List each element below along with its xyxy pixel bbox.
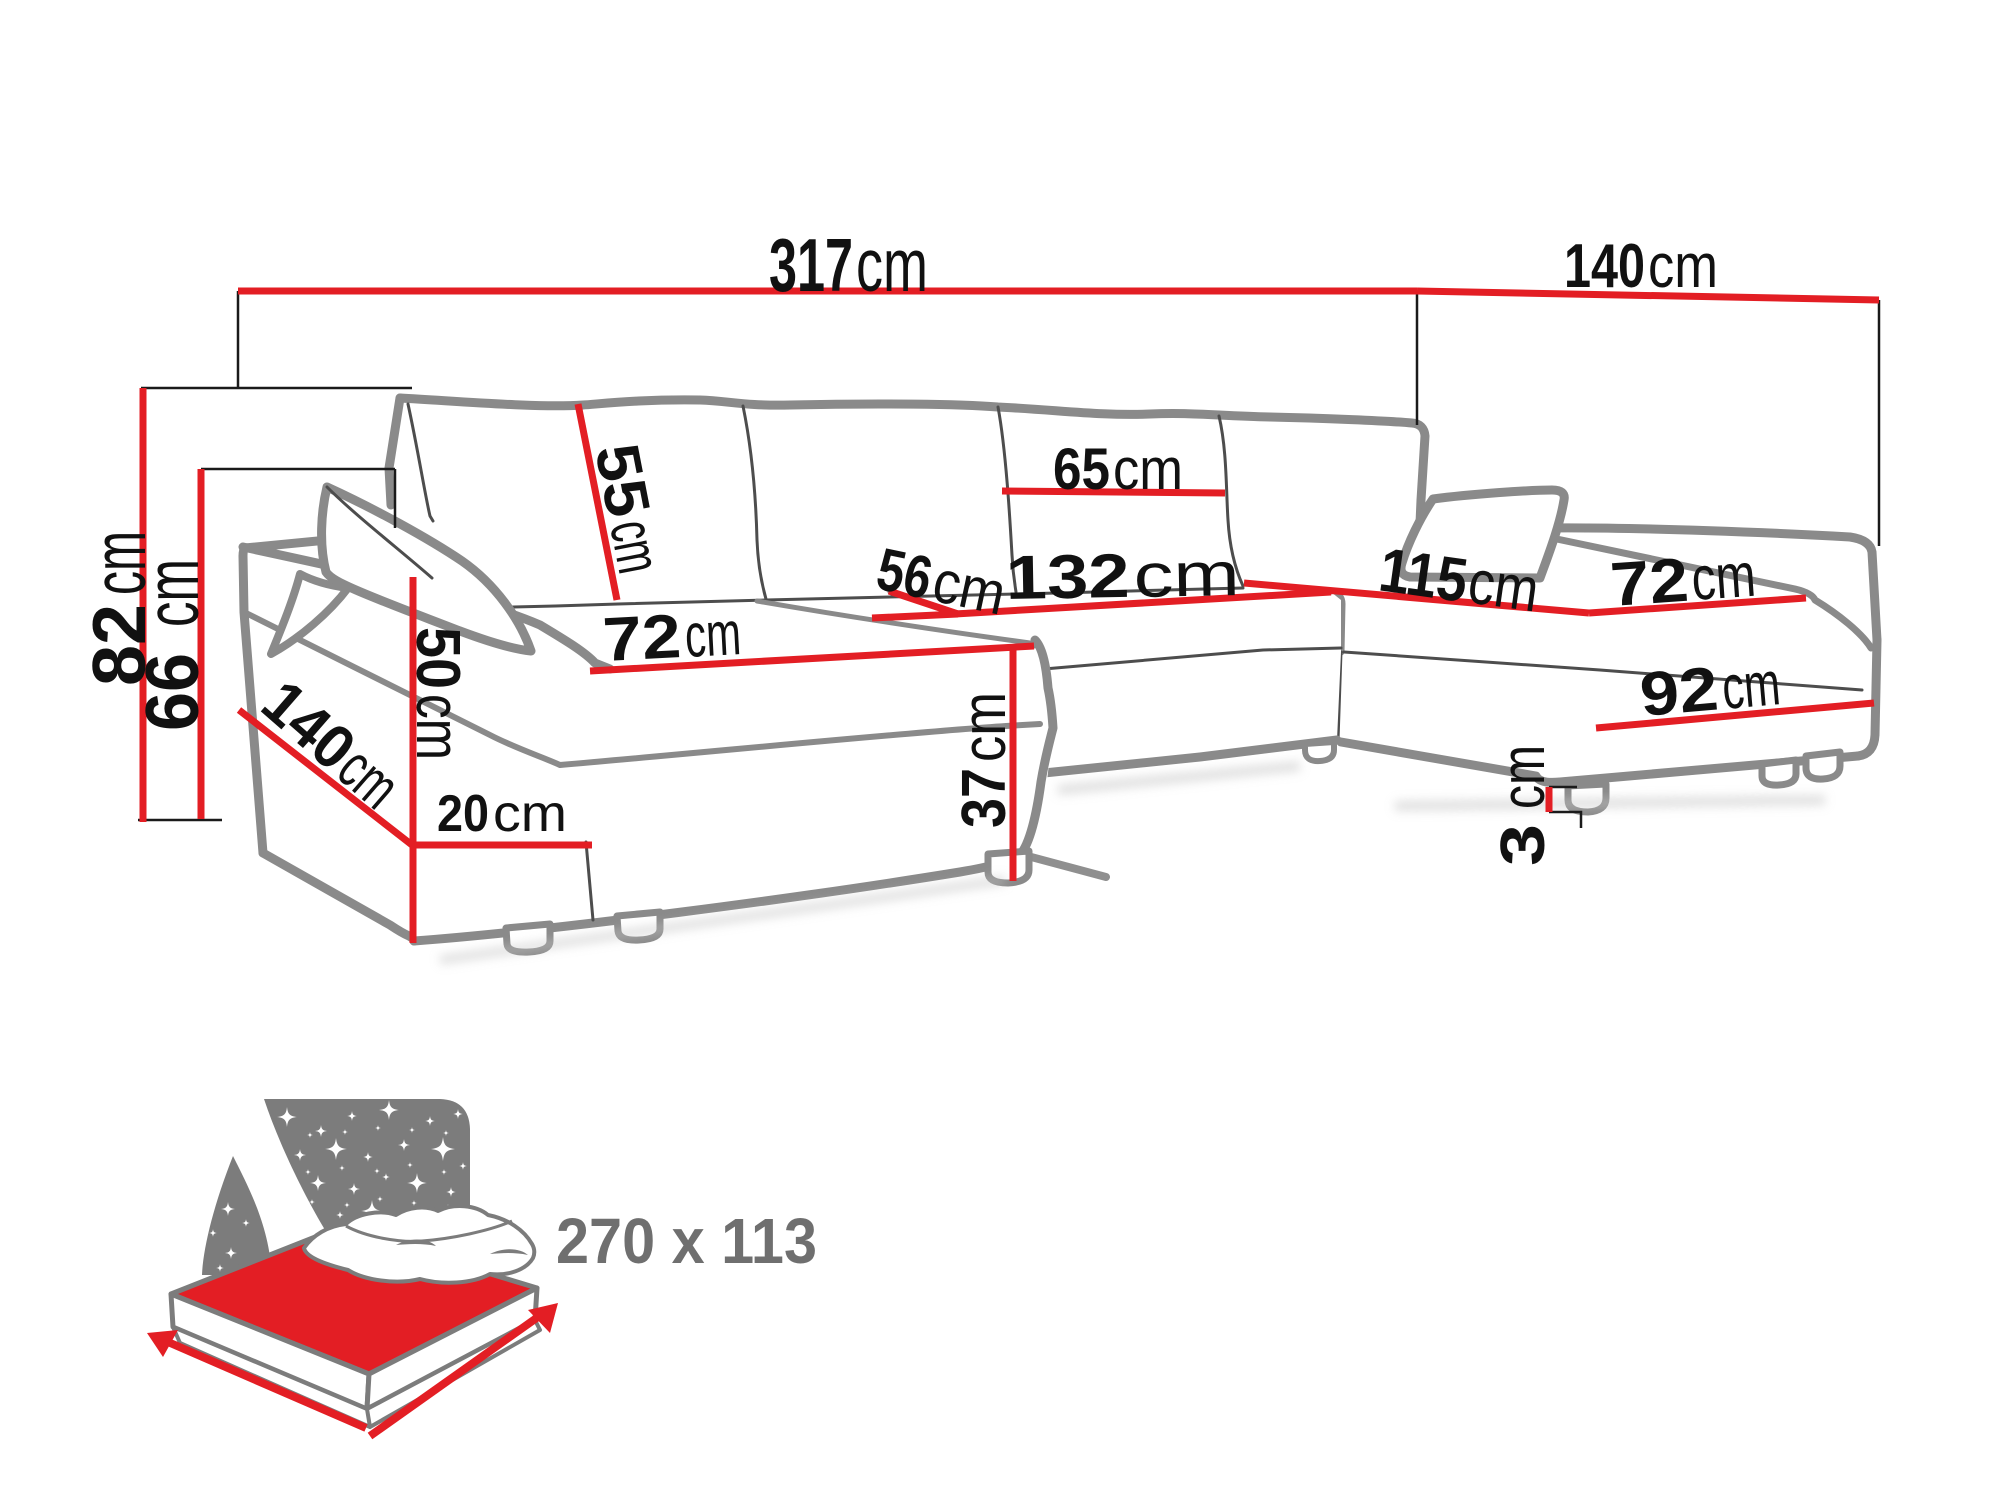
svg-text:55: 55 [581,439,662,523]
svg-text:cm: cm [1719,649,1783,723]
svg-text:cm: cm [130,559,214,627]
svg-text:cm: cm [1489,745,1558,809]
svg-text:50: 50 [403,627,472,689]
svg-text:72: 72 [601,602,683,675]
svg-text:65: 65 [1053,437,1110,502]
svg-text:cm: cm [856,223,928,307]
svg-text:317: 317 [769,223,853,307]
svg-text:cm: cm [683,599,743,671]
svg-text:cm: cm [1133,540,1240,611]
svg-text:cm: cm [1648,232,1718,301]
svg-text:cm: cm [1113,437,1183,502]
svg-text:cm: cm [403,694,472,760]
svg-text:132: 132 [1005,542,1130,613]
svg-text:3: 3 [1489,824,1558,866]
svg-text:92: 92 [1637,654,1721,730]
svg-text:115: 115 [1375,536,1472,617]
svg-text:270 x 113: 270 x 113 [556,1205,817,1277]
svg-text:cm: cm [1689,541,1758,614]
svg-text:66: 66 [130,653,214,731]
svg-text:72: 72 [1608,546,1691,620]
svg-text:cm: cm [493,785,567,843]
svg-text:140: 140 [1564,232,1645,301]
svg-text:cm: cm [1464,548,1543,626]
svg-text:cm: cm [950,692,1019,762]
svg-text:37: 37 [950,768,1019,828]
svg-text:20: 20 [437,785,489,843]
